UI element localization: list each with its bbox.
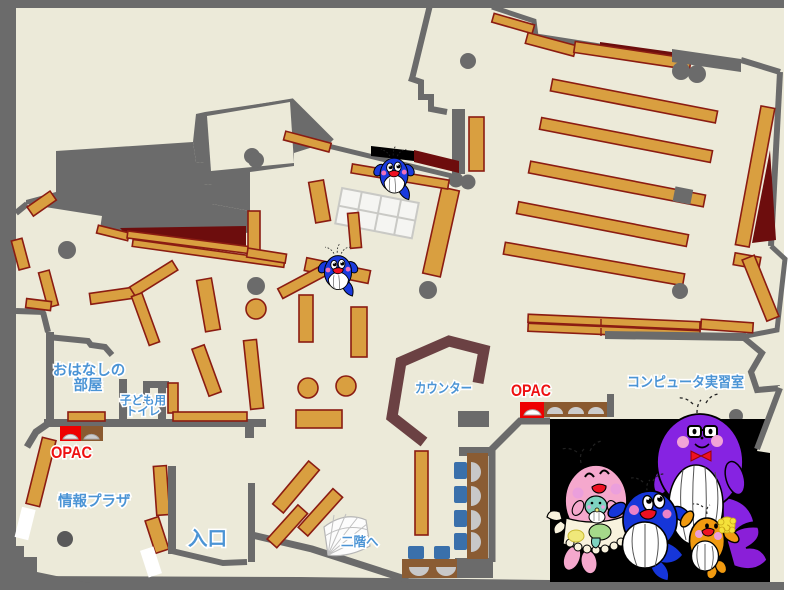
svg-text:入口: 入口 [188, 528, 227, 550]
svg-text:二階へ: 二階へ [341, 534, 379, 549]
svg-text:OPAC: OPAC [511, 381, 551, 400]
svg-text:トイレ: トイレ [126, 405, 161, 418]
svg-text:カウンター: カウンター [415, 381, 472, 396]
svg-text:おはなしの: おはなしの [53, 362, 126, 379]
svg-text:情報プラザ: 情報プラザ [58, 492, 131, 510]
svg-text:部屋: 部屋 [74, 376, 103, 394]
svg-text:コンピュータ実習室: コンピュータ実習室 [627, 374, 744, 390]
svg-text:OPAC: OPAC [51, 443, 92, 462]
